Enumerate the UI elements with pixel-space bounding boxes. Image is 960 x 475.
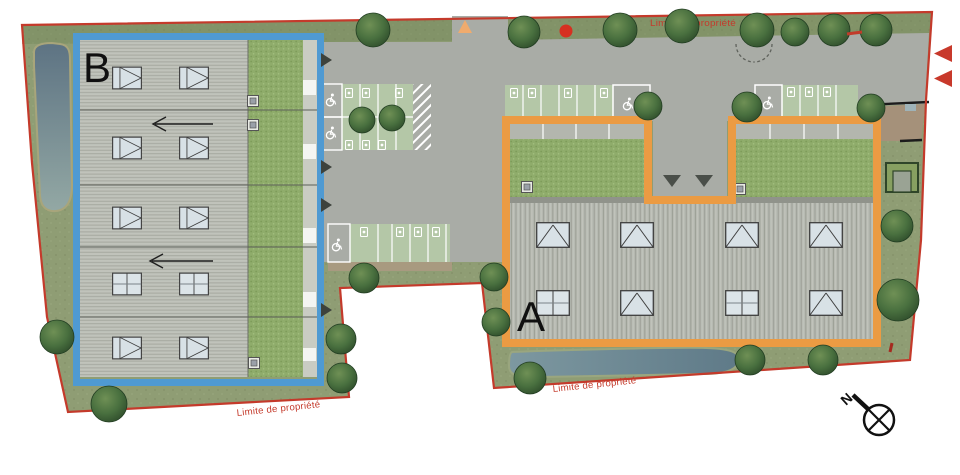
building-b-label: B <box>83 44 111 91</box>
roof-vent-icon <box>249 358 260 369</box>
skylight-icon <box>113 207 142 229</box>
hatched-no-parking <box>413 84 431 150</box>
tree-icon <box>480 263 508 291</box>
tree-icon <box>634 92 662 120</box>
access-arrow-icon <box>934 70 952 87</box>
tree-icon <box>379 105 405 131</box>
tree-icon <box>508 16 540 48</box>
tree-icon <box>740 13 774 47</box>
tree-icon <box>91 386 127 422</box>
building-a-label: A <box>517 293 545 340</box>
sidewalk-brown <box>328 262 452 271</box>
tree-icon <box>665 9 699 43</box>
skylight-icon <box>180 207 209 229</box>
tree-icon <box>603 13 637 47</box>
tree-icon <box>881 210 913 242</box>
skylight-icon <box>113 67 142 89</box>
skylight-icon <box>726 223 759 248</box>
tree-icon <box>860 14 892 46</box>
tree-icon <box>877 279 919 321</box>
tree-icon <box>514 362 546 394</box>
skylight-icon <box>180 67 209 89</box>
storage-enclosure <box>886 163 918 192</box>
site-plan: B A Limite de propriété Limite de propri… <box>0 0 960 475</box>
roof-vent-icon <box>522 182 533 193</box>
roof-vent-icon <box>248 120 259 131</box>
skylight-icon <box>113 337 142 359</box>
pond-left <box>34 43 72 211</box>
tree-icon <box>349 263 379 293</box>
red-dot-marker <box>560 25 573 38</box>
skylight-icon <box>621 291 654 316</box>
tree-icon <box>482 308 510 336</box>
building-b: B <box>77 37 333 383</box>
tree-icon <box>326 324 356 354</box>
skylight-icon <box>113 137 142 159</box>
skylight-icon <box>180 137 209 159</box>
tree-icon <box>735 345 765 375</box>
tree-icon <box>327 363 357 393</box>
tree-icon <box>349 107 375 133</box>
access-arrow-icon <box>934 45 952 62</box>
tree-icon <box>40 320 74 354</box>
tree-icon <box>781 18 809 46</box>
north-label: N <box>837 390 855 409</box>
skylight-icon <box>180 273 209 295</box>
tree-icon <box>808 345 838 375</box>
skylight-icon <box>621 223 654 248</box>
red-dash-marker <box>847 32 862 34</box>
skylight-icon <box>810 223 843 248</box>
red-tick-marker <box>890 343 892 352</box>
tree-icon <box>732 92 762 122</box>
tree-icon <box>356 13 390 47</box>
skylight-icon <box>726 291 759 316</box>
site-plan-drawing: B A Limite de propriété Limite de propri… <box>0 0 960 475</box>
roof-vent-icon <box>735 184 746 195</box>
skylight-icon <box>113 273 142 295</box>
skylight-icon <box>810 291 843 316</box>
skylight-icon <box>537 223 570 248</box>
tree-icon <box>818 14 850 46</box>
tree-icon <box>857 94 885 122</box>
north-compass-icon: N <box>837 390 894 435</box>
roof-vent-icon <box>248 96 259 107</box>
skylight-icon <box>180 337 209 359</box>
